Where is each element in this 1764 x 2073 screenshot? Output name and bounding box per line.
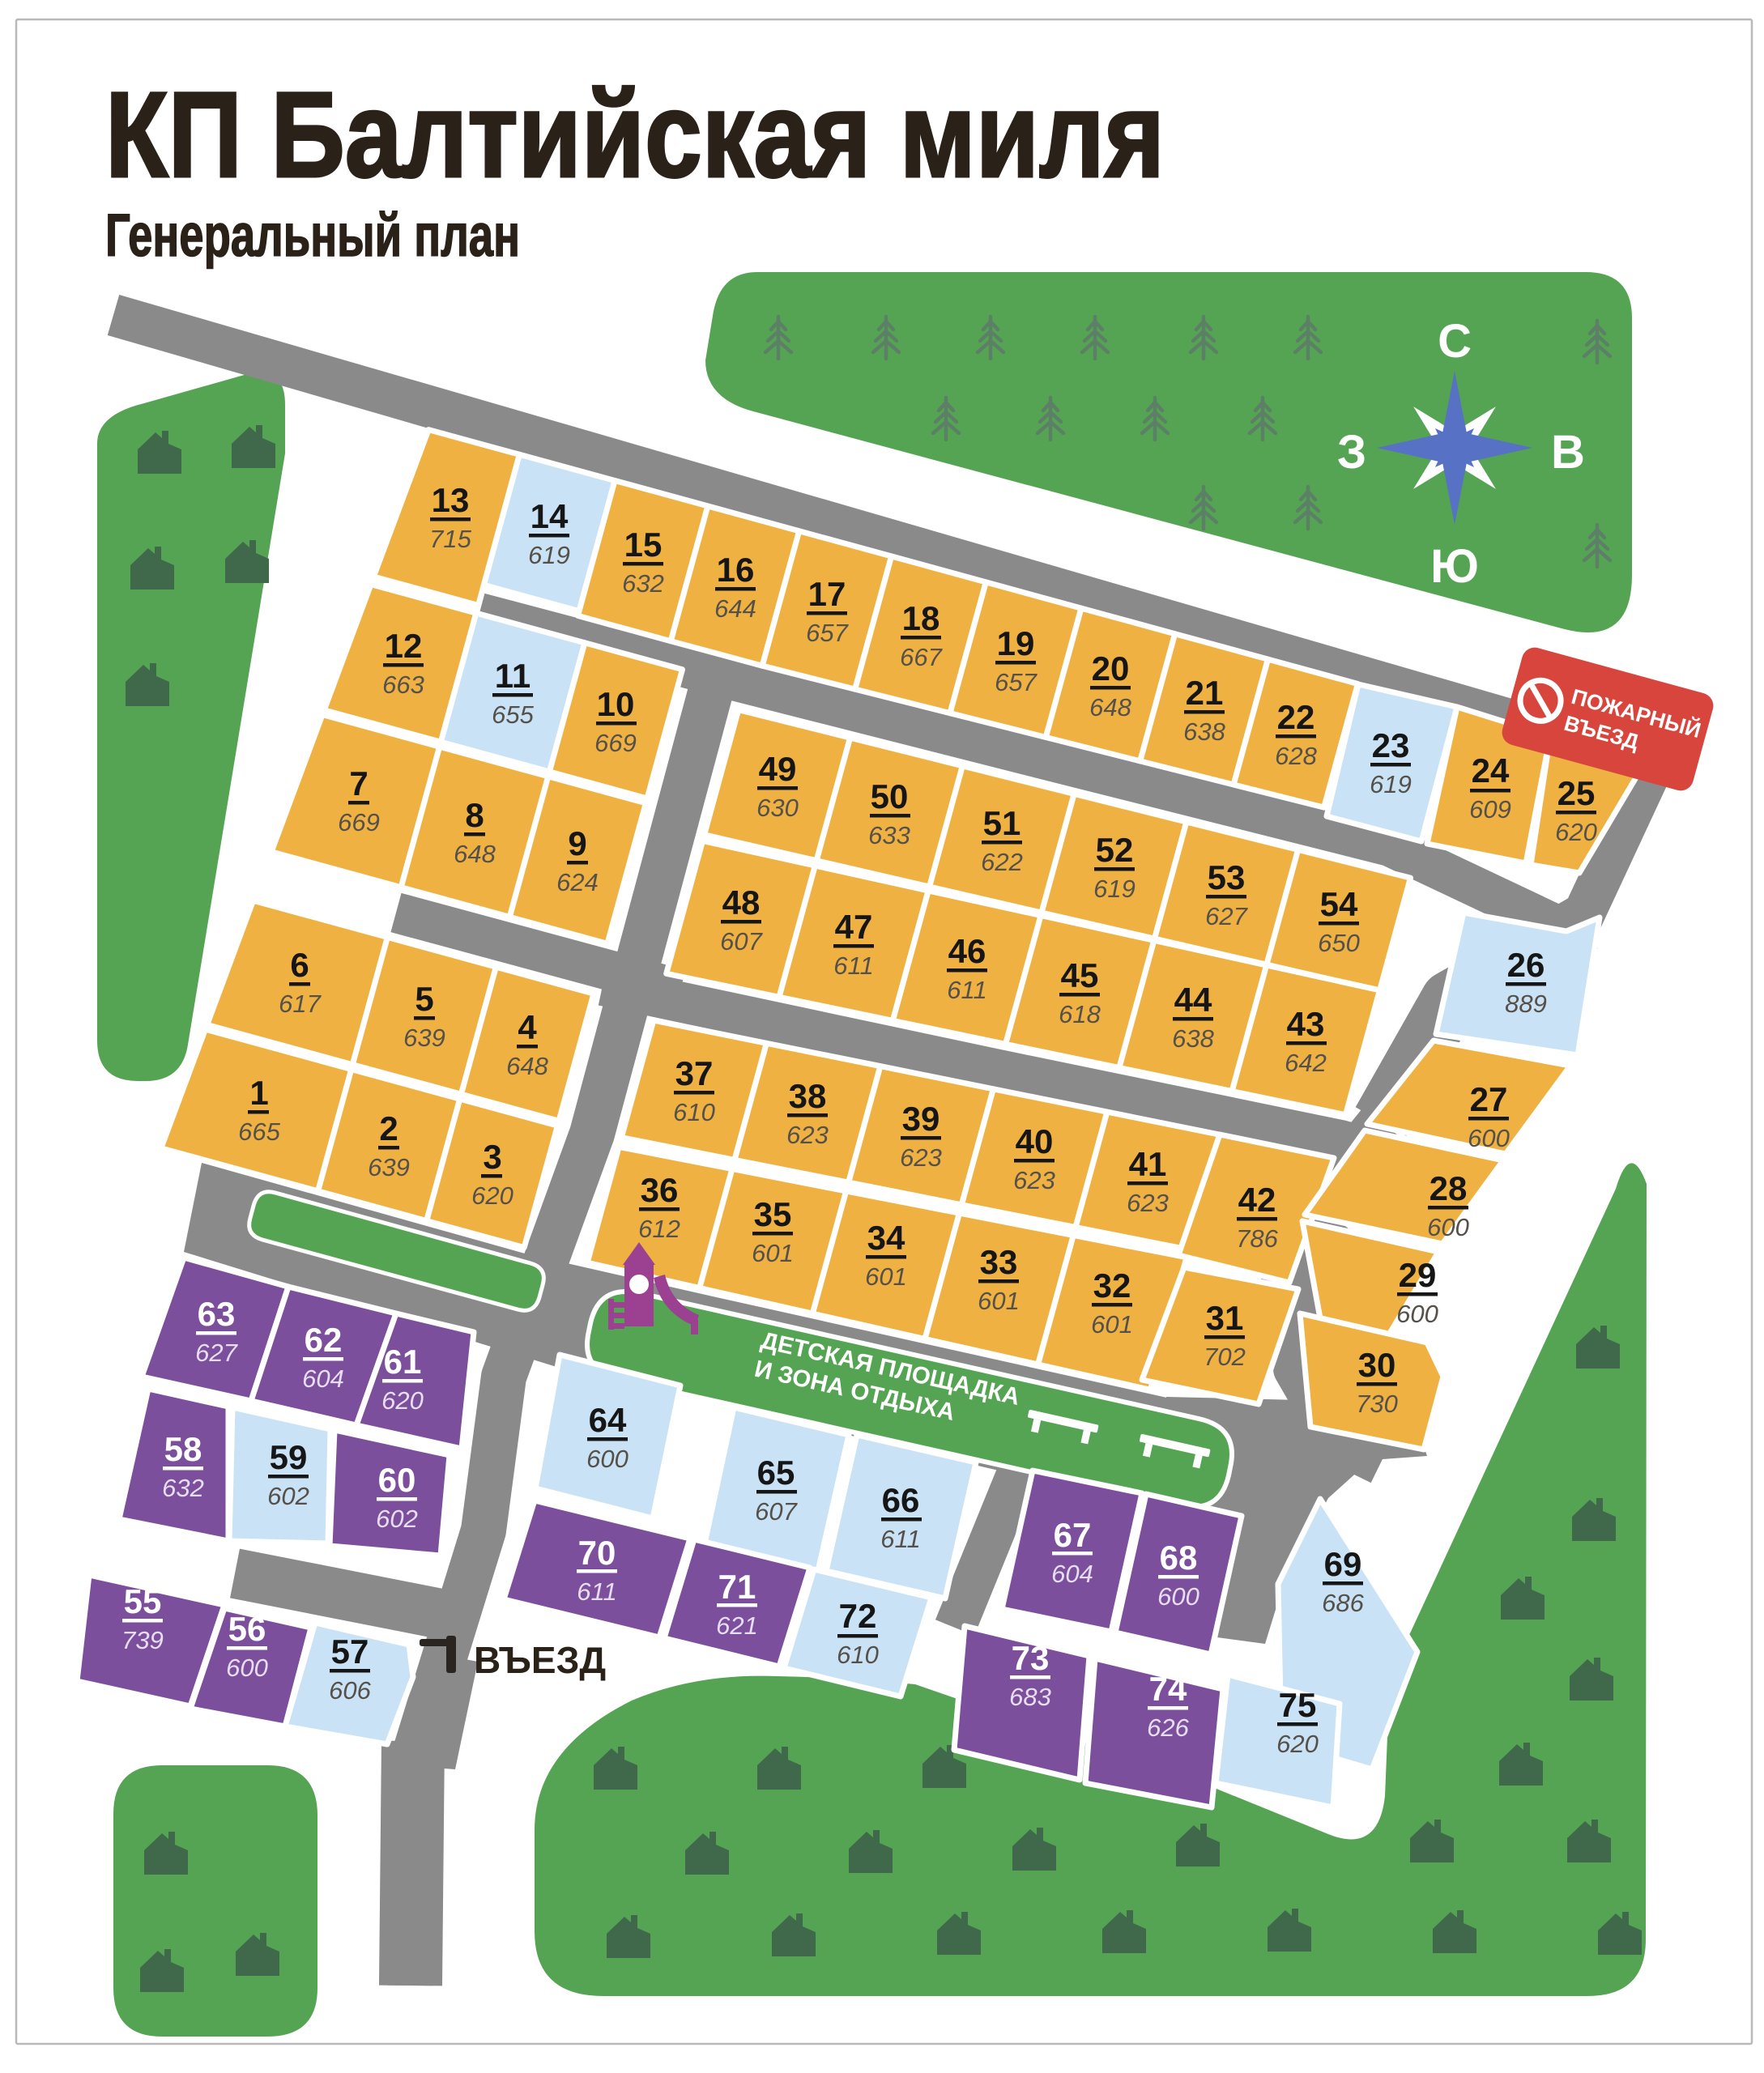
svg-text:38: 38 — [789, 1077, 827, 1115]
svg-text:6: 6 — [290, 946, 309, 984]
svg-text:68: 68 — [1160, 1539, 1198, 1577]
svg-text:739: 739 — [121, 1626, 164, 1654]
svg-text:617: 617 — [279, 990, 322, 1018]
svg-text:715: 715 — [429, 525, 471, 553]
svg-text:627: 627 — [195, 1339, 238, 1367]
svg-text:52: 52 — [1096, 831, 1134, 869]
svg-text:626: 626 — [1147, 1713, 1189, 1742]
svg-text:69: 69 — [1324, 1545, 1362, 1583]
svg-text:633: 633 — [868, 821, 910, 849]
svg-text:604: 604 — [302, 1364, 344, 1393]
svg-text:3: 3 — [483, 1138, 501, 1176]
svg-text:601: 601 — [865, 1262, 907, 1291]
svg-text:702: 702 — [1204, 1343, 1246, 1371]
svg-text:665: 665 — [238, 1117, 280, 1146]
svg-text:34: 34 — [867, 1219, 905, 1257]
svg-text:4: 4 — [518, 1008, 537, 1046]
svg-text:620: 620 — [1555, 818, 1597, 846]
svg-text:621: 621 — [716, 1611, 758, 1640]
svg-text:26: 26 — [1507, 946, 1545, 984]
svg-text:618: 618 — [1059, 1000, 1101, 1028]
svg-text:В: В — [1551, 426, 1585, 479]
svg-text:23: 23 — [1372, 726, 1410, 764]
svg-text:54: 54 — [1320, 885, 1358, 923]
svg-text:611: 611 — [880, 1525, 920, 1553]
svg-text:600: 600 — [226, 1654, 268, 1682]
svg-text:642: 642 — [1285, 1049, 1327, 1077]
svg-text:53: 53 — [1208, 858, 1246, 896]
svg-text:610: 610 — [673, 1098, 715, 1126]
svg-text:57: 57 — [331, 1632, 369, 1671]
svg-text:663: 663 — [382, 670, 424, 699]
svg-text:КП Балтийская миля: КП Балтийская миля — [105, 66, 1165, 202]
svg-text:601: 601 — [978, 1287, 1020, 1315]
svg-text:650: 650 — [1318, 929, 1360, 957]
svg-text:630: 630 — [756, 794, 799, 822]
svg-text:604: 604 — [1051, 1560, 1093, 1588]
svg-text:620: 620 — [381, 1386, 424, 1415]
svg-text:13: 13 — [432, 481, 470, 519]
svg-text:1: 1 — [249, 1074, 268, 1112]
svg-text:73: 73 — [1012, 1639, 1050, 1677]
svg-text:11: 11 — [495, 657, 530, 695]
svg-text:63: 63 — [198, 1295, 236, 1333]
svg-text:730: 730 — [1356, 1390, 1398, 1418]
svg-text:31: 31 — [1206, 1299, 1244, 1337]
svg-text:683: 683 — [1009, 1683, 1051, 1711]
svg-text:22: 22 — [1277, 698, 1315, 736]
svg-text:628: 628 — [1275, 742, 1317, 770]
svg-text:20: 20 — [1092, 649, 1130, 687]
svg-text:655: 655 — [492, 700, 534, 729]
svg-text:638: 638 — [1172, 1024, 1214, 1053]
svg-text:786: 786 — [1236, 1224, 1278, 1253]
svg-text:27: 27 — [1470, 1080, 1508, 1118]
svg-text:632: 632 — [622, 569, 664, 598]
svg-text:71: 71 — [718, 1568, 756, 1606]
svg-text:632: 632 — [162, 1474, 204, 1502]
svg-text:623: 623 — [1127, 1189, 1169, 1217]
svg-text:620: 620 — [1276, 1730, 1319, 1758]
svg-text:19: 19 — [997, 624, 1035, 662]
svg-text:607: 607 — [755, 1497, 798, 1526]
svg-text:33: 33 — [980, 1243, 1018, 1281]
svg-text:28: 28 — [1430, 1169, 1468, 1207]
svg-text:600: 600 — [1157, 1582, 1199, 1611]
svg-text:65: 65 — [757, 1454, 795, 1492]
svg-text:35: 35 — [754, 1195, 792, 1233]
svg-text:606: 606 — [329, 1676, 371, 1705]
svg-text:8: 8 — [465, 796, 484, 834]
svg-text:648: 648 — [506, 1052, 548, 1080]
svg-text:25: 25 — [1557, 774, 1596, 812]
svg-text:601: 601 — [752, 1239, 794, 1267]
svg-text:9: 9 — [568, 824, 586, 862]
svg-text:67: 67 — [1054, 1516, 1092, 1554]
svg-text:18: 18 — [902, 599, 940, 637]
svg-text:611: 611 — [833, 951, 873, 980]
svg-text:49: 49 — [759, 750, 797, 788]
svg-text:70: 70 — [578, 1534, 616, 1572]
svg-text:61: 61 — [384, 1343, 422, 1381]
svg-text:37: 37 — [675, 1054, 714, 1092]
svg-text:619: 619 — [1093, 875, 1136, 903]
svg-text:601: 601 — [1091, 1310, 1133, 1339]
svg-text:Генеральный план: Генеральный план — [105, 202, 520, 269]
svg-text:17: 17 — [808, 575, 846, 613]
svg-text:С: С — [1438, 315, 1472, 368]
svg-text:657: 657 — [995, 668, 1038, 696]
svg-text:602: 602 — [376, 1505, 418, 1533]
svg-text:36: 36 — [641, 1171, 679, 1209]
svg-text:50: 50 — [871, 777, 909, 815]
svg-text:Ю: Ю — [1430, 540, 1479, 593]
svg-text:62: 62 — [305, 1321, 343, 1359]
svg-text:611: 611 — [577, 1577, 616, 1606]
svg-text:612: 612 — [638, 1215, 680, 1243]
svg-text:600: 600 — [586, 1445, 628, 1473]
svg-text:58: 58 — [164, 1430, 202, 1468]
svg-text:41: 41 — [1129, 1145, 1167, 1183]
svg-text:669: 669 — [594, 729, 637, 757]
svg-text:600: 600 — [1427, 1213, 1469, 1241]
svg-text:639: 639 — [368, 1153, 410, 1181]
svg-text:14: 14 — [530, 497, 569, 535]
svg-text:ВЪЕЗД: ВЪЕЗД — [474, 1639, 606, 1681]
svg-text:607: 607 — [720, 927, 763, 956]
svg-text:622: 622 — [981, 848, 1023, 876]
svg-text:648: 648 — [1089, 693, 1131, 722]
svg-text:610: 610 — [837, 1641, 879, 1669]
svg-text:15: 15 — [624, 526, 663, 564]
svg-text:648: 648 — [454, 840, 496, 868]
svg-text:24: 24 — [1472, 751, 1510, 790]
svg-text:627: 627 — [1205, 902, 1248, 930]
svg-text:12: 12 — [385, 627, 423, 665]
svg-text:7: 7 — [349, 764, 368, 802]
svg-text:686: 686 — [1322, 1589, 1364, 1617]
svg-text:47: 47 — [835, 908, 873, 946]
svg-text:623: 623 — [786, 1121, 829, 1149]
svg-text:611: 611 — [947, 976, 986, 1004]
svg-text:46: 46 — [948, 932, 986, 970]
svg-text:5: 5 — [415, 980, 433, 1018]
svg-text:51: 51 — [983, 804, 1021, 842]
svg-text:59: 59 — [270, 1438, 308, 1476]
svg-text:620: 620 — [471, 1181, 513, 1210]
svg-text:644: 644 — [714, 594, 756, 623]
svg-text:40: 40 — [1016, 1122, 1054, 1160]
svg-text:619: 619 — [528, 541, 570, 569]
svg-text:624: 624 — [556, 868, 599, 896]
svg-text:43: 43 — [1287, 1005, 1325, 1043]
svg-text:21: 21 — [1186, 674, 1224, 712]
svg-text:623: 623 — [900, 1143, 942, 1172]
svg-text:55: 55 — [124, 1582, 162, 1620]
svg-text:29: 29 — [1399, 1256, 1437, 1294]
svg-text:66: 66 — [882, 1481, 920, 1519]
svg-text:39: 39 — [902, 1100, 940, 1138]
svg-text:42: 42 — [1238, 1181, 1276, 1219]
svg-text:669: 669 — [338, 808, 380, 836]
svg-text:30: 30 — [1358, 1346, 1396, 1384]
svg-text:32: 32 — [1093, 1266, 1131, 1305]
svg-text:667: 667 — [900, 643, 943, 671]
svg-text:48: 48 — [722, 883, 761, 922]
svg-text:623: 623 — [1013, 1166, 1055, 1194]
svg-text:10: 10 — [597, 685, 635, 723]
svg-text:45: 45 — [1061, 956, 1099, 994]
svg-text:638: 638 — [1183, 717, 1225, 746]
svg-text:56: 56 — [228, 1610, 266, 1648]
svg-text:600: 600 — [1396, 1300, 1438, 1328]
svg-text:72: 72 — [839, 1597, 877, 1635]
svg-text:609: 609 — [1469, 795, 1511, 824]
svg-text:889: 889 — [1505, 990, 1547, 1018]
svg-text:60: 60 — [378, 1461, 416, 1499]
svg-text:64: 64 — [589, 1401, 627, 1439]
svg-text:619: 619 — [1370, 770, 1412, 798]
svg-text:74: 74 — [1149, 1670, 1187, 1708]
svg-text:2: 2 — [379, 1109, 398, 1147]
svg-text:16: 16 — [717, 551, 755, 589]
svg-text:600: 600 — [1468, 1124, 1510, 1152]
svg-text:З: З — [1337, 426, 1366, 479]
svg-text:44: 44 — [1174, 981, 1212, 1019]
svg-text:639: 639 — [403, 1024, 445, 1052]
svg-text:657: 657 — [806, 619, 849, 647]
svg-text:602: 602 — [267, 1482, 309, 1510]
svg-text:75: 75 — [1279, 1686, 1317, 1724]
